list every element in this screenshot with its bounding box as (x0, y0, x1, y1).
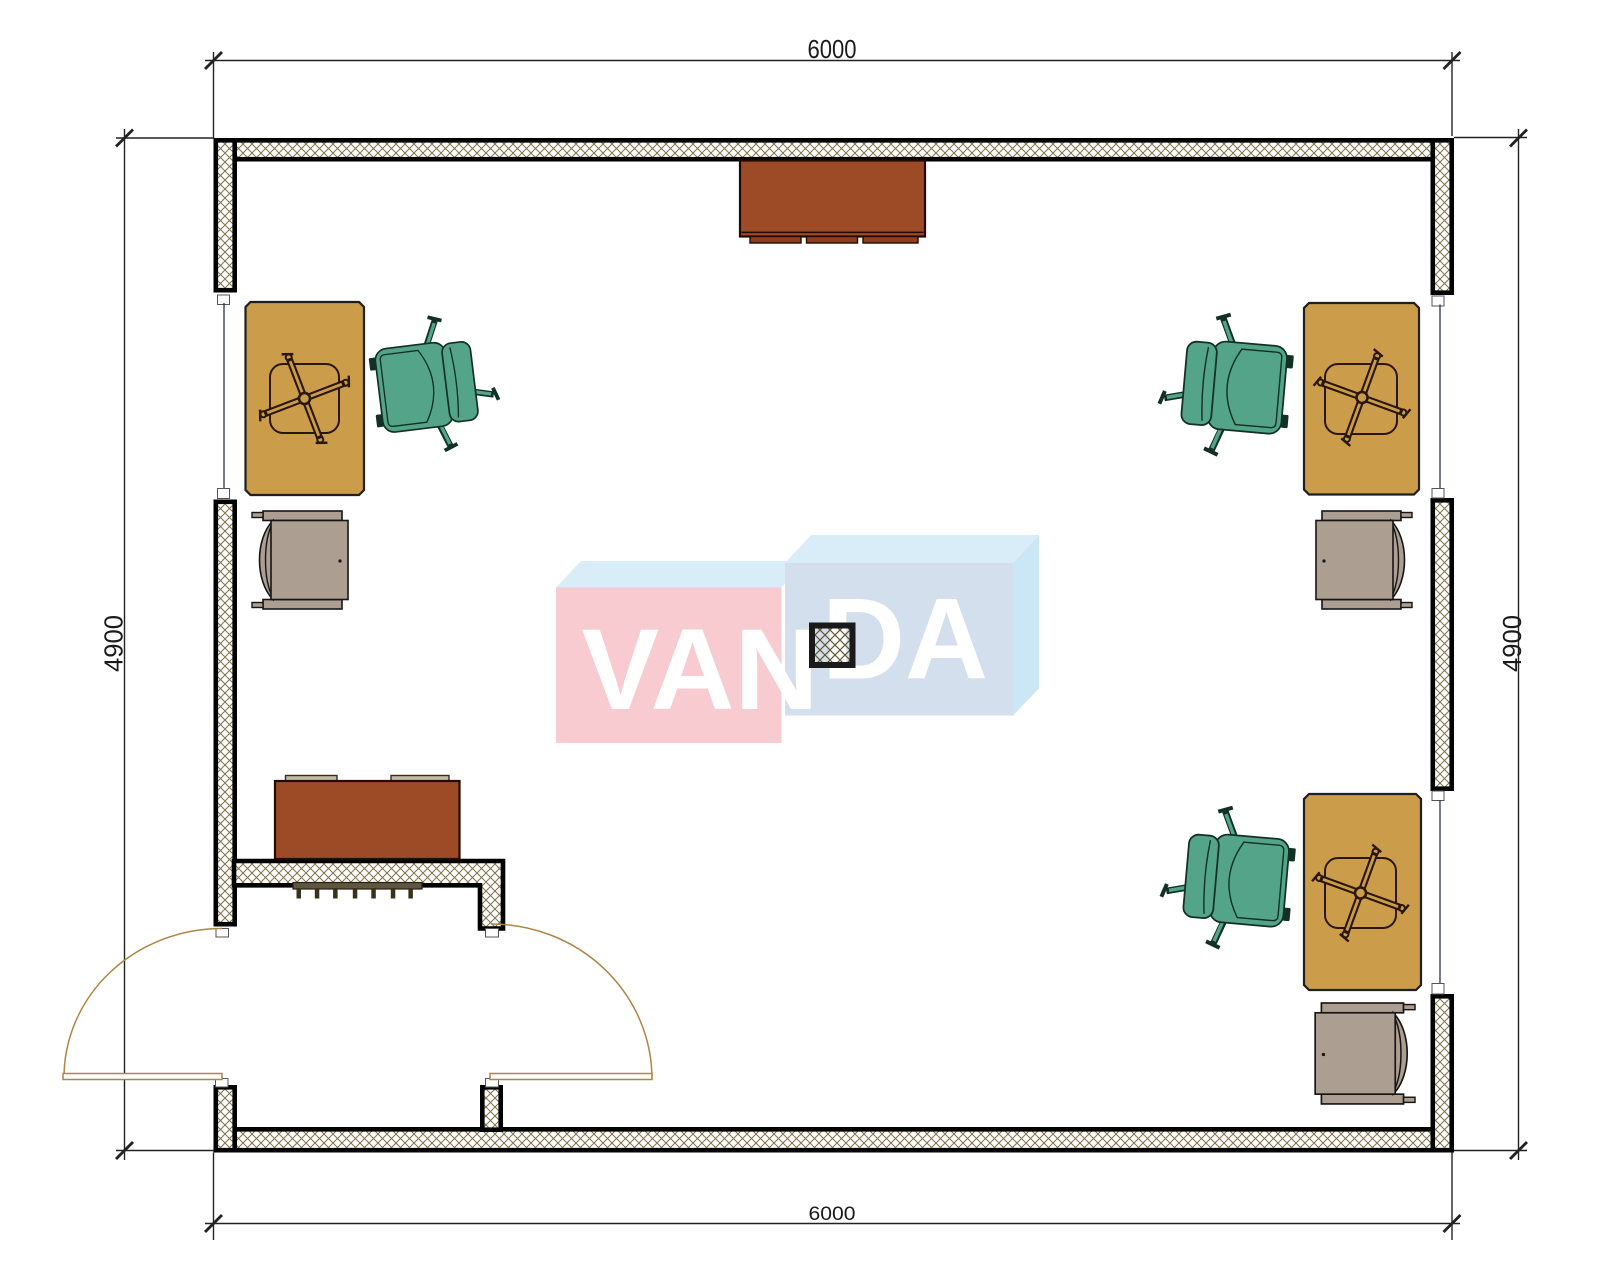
svg-text:4900: 4900 (1499, 615, 1527, 672)
svg-text:6000: 6000 (809, 1203, 856, 1225)
svg-text:VAN: VAN (582, 606, 819, 734)
svg-text:4900: 4900 (101, 615, 129, 672)
svg-text:6000: 6000 (808, 34, 857, 64)
